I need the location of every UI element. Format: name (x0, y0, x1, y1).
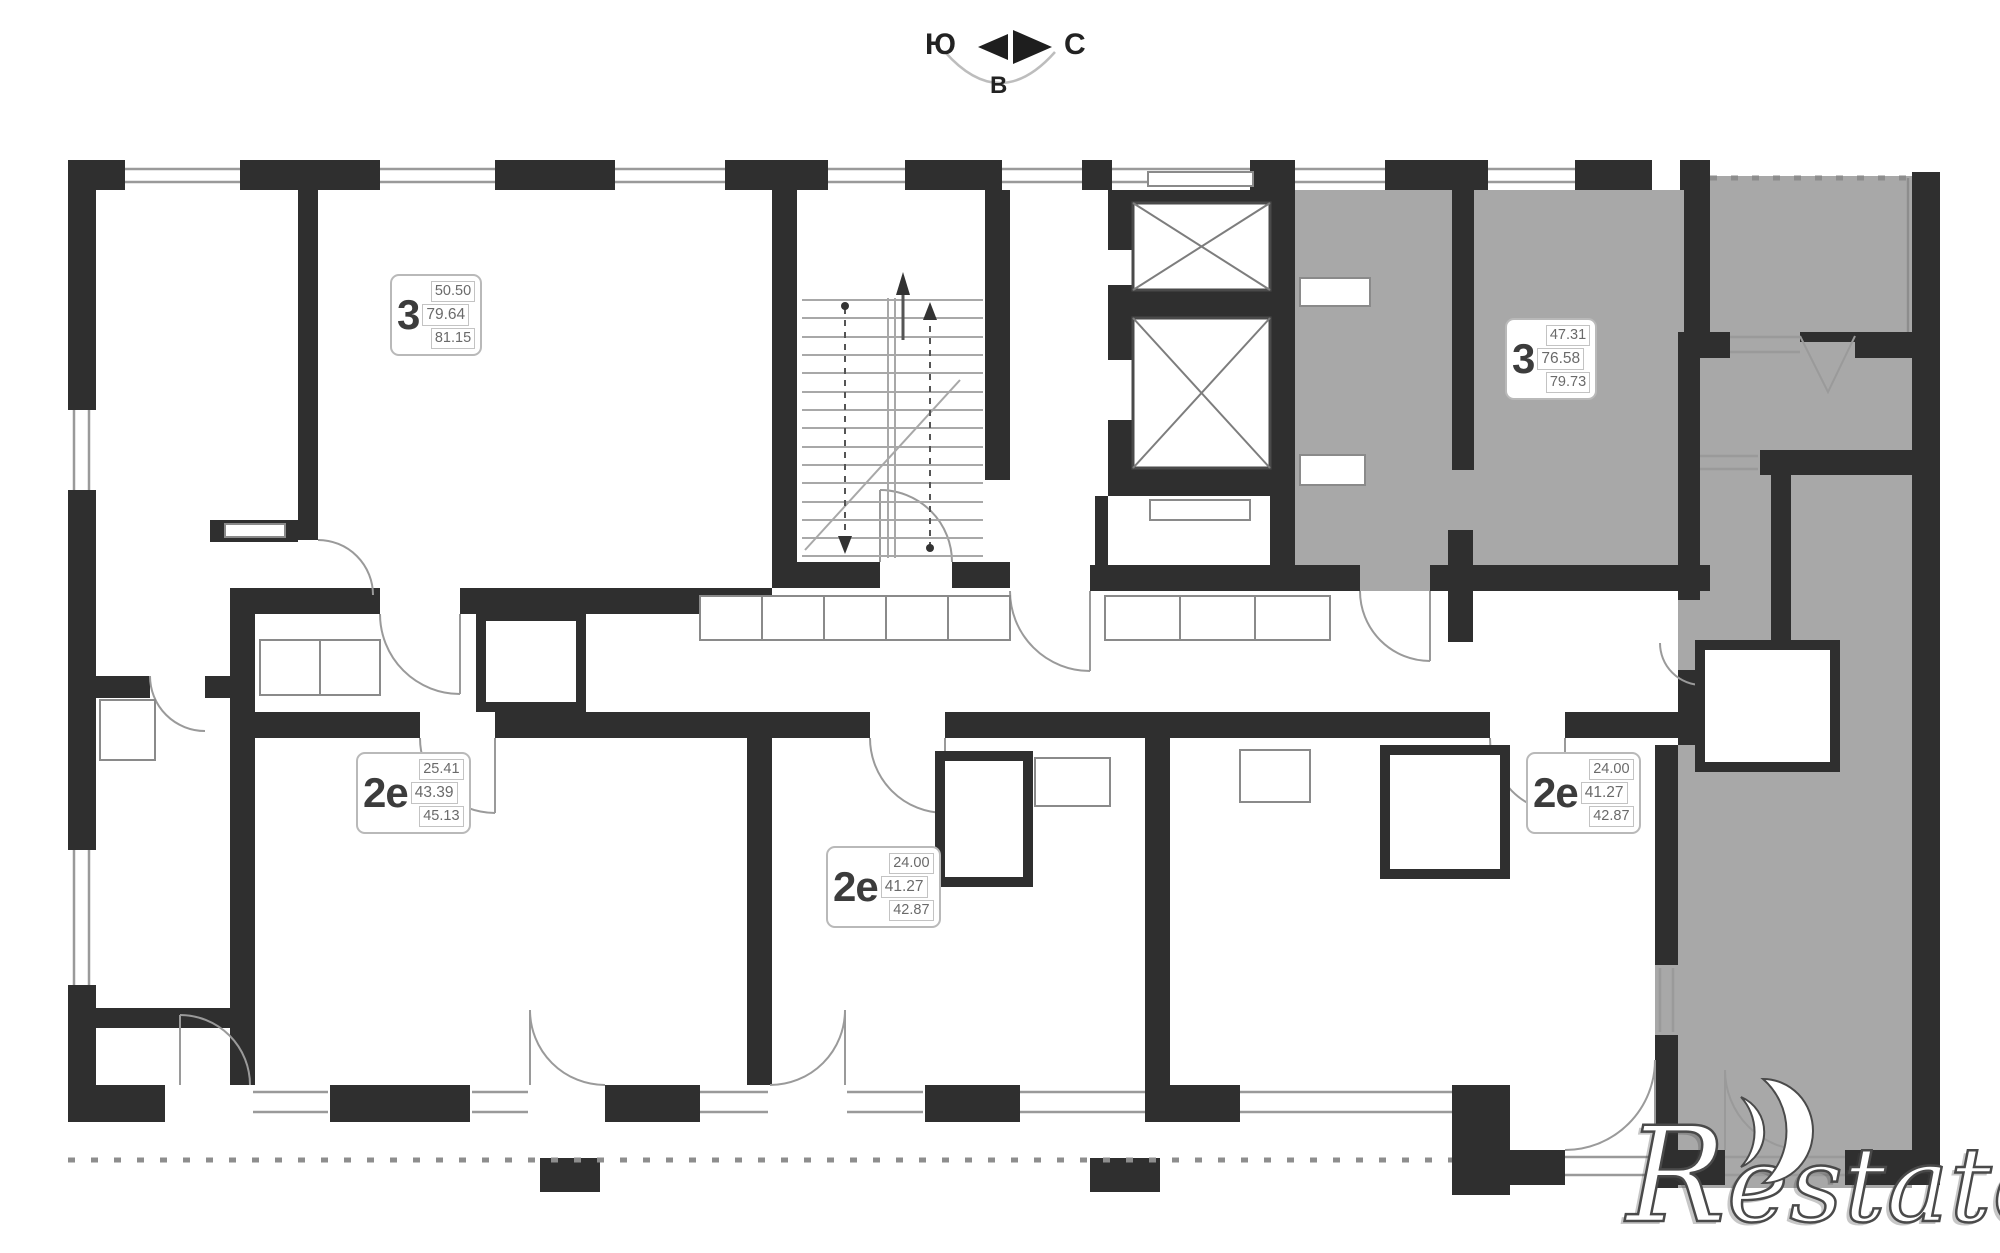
apartment-type: 2е (1533, 772, 1578, 814)
area-total: 79.73 (1546, 372, 1590, 393)
area-total: 81.15 (431, 328, 475, 349)
apartment-tag-2e-left[interactable]: 2е 25.41 43.39 45.13 (356, 752, 471, 834)
area-main: 41.27 (1581, 782, 1628, 804)
watermark-initial: R (1627, 1099, 1727, 1253)
elevators (1133, 172, 1270, 520)
area-main: 41.27 (881, 876, 928, 898)
area-living: 25.41 (419, 759, 463, 780)
compass-label-north: С (1064, 28, 1086, 62)
floor-plan-page: Ю С В 3 50.50 79.64 81.15 3 47.31 76.58 … (0, 0, 2000, 1223)
apartment-tag-3-left[interactable]: 3 50.50 79.64 81.15 (390, 274, 482, 356)
area-living: 47.31 (1546, 325, 1590, 346)
apartment-tag-3-right[interactable]: 3 47.31 76.58 79.73 (1505, 318, 1597, 400)
apartment-type: 2е (363, 772, 408, 814)
area-total: 42.87 (889, 900, 933, 921)
area-total: 45.13 (419, 806, 463, 827)
area-living: 50.50 (431, 281, 475, 302)
watermark-logo-icon (1733, 1075, 1817, 1199)
apartment-type: 3 (397, 294, 419, 336)
area-main: 76.58 (1537, 348, 1584, 370)
area-living: 24.00 (1589, 759, 1633, 780)
area-main: 43.39 (411, 782, 458, 804)
apartment-type: 2е (833, 866, 878, 908)
compass-label-east: В (990, 72, 1007, 100)
apartment-type: 3 (1512, 338, 1534, 380)
area-main: 79.64 (422, 304, 469, 326)
apartment-tag-2e-middle[interactable]: 2е 24.00 41.27 42.87 (826, 846, 941, 928)
apartment-tag-2e-right[interactable]: 2е 24.00 41.27 42.87 (1526, 752, 1641, 834)
compass-label-south: Ю (925, 28, 956, 62)
area-total: 42.87 (1589, 806, 1633, 827)
floor-plan (0, 0, 2000, 1223)
area-living: 24.00 (889, 853, 933, 874)
